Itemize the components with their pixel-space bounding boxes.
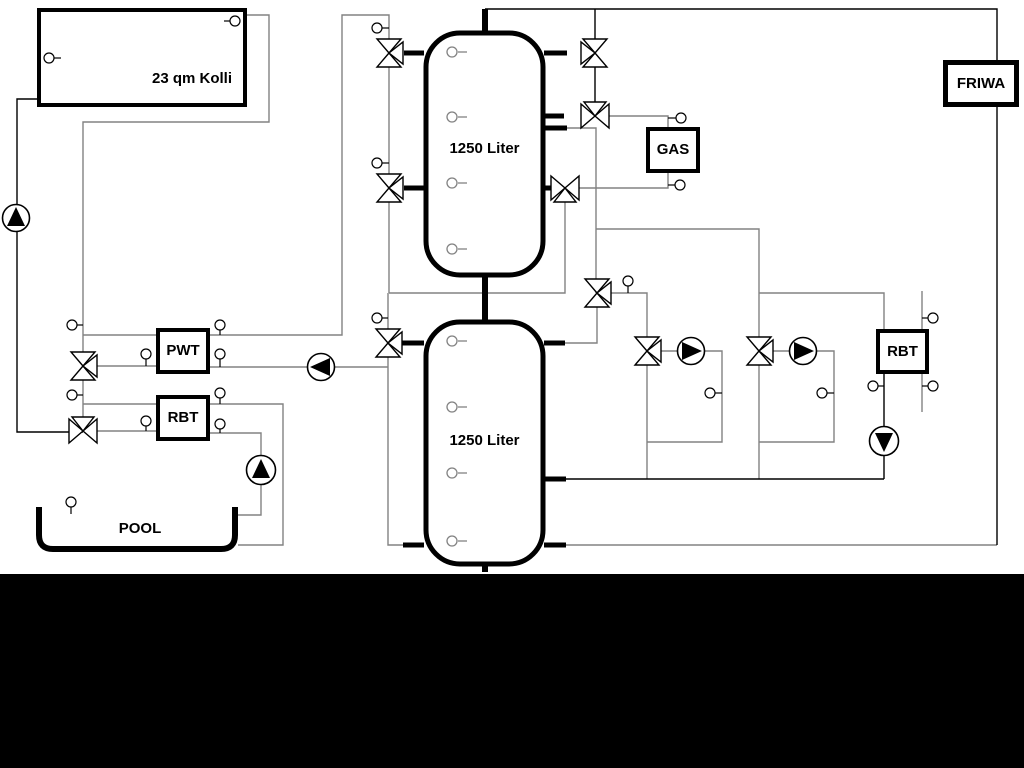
rbt-right-box — [878, 331, 927, 372]
gas-box — [648, 129, 698, 171]
sensor-icon — [372, 23, 389, 33]
rbt-left-box — [158, 397, 208, 439]
three-way-valve-icon — [747, 337, 773, 365]
pipe-collector-return-loop — [17, 99, 83, 432]
sensor-icon — [668, 113, 686, 123]
pump-icon — [870, 427, 899, 456]
pwt-box — [158, 330, 208, 372]
three-way-valve-icon — [581, 102, 609, 128]
pipe-tankstub-to-mixdown — [565, 128, 596, 293]
sensor-icon — [705, 388, 722, 398]
three-way-valve-icon — [376, 329, 402, 357]
sensor-icon — [817, 388, 834, 398]
pool-basin — [39, 507, 235, 549]
sensor-icon — [66, 497, 76, 514]
sensor-icon — [372, 313, 388, 323]
pipe-top-header-friwa — [485, 9, 997, 545]
sensor-icon — [215, 349, 225, 367]
three-way-valve-icon — [635, 337, 661, 365]
pump-icon — [308, 354, 335, 381]
tank-lower — [426, 322, 543, 564]
pipe-valve-to-circuit1 — [597, 293, 647, 479]
bottom-black-bar — [0, 574, 1024, 768]
collector-box — [39, 10, 245, 105]
pipe-gas-bottom-return — [579, 172, 668, 188]
sensor-icon — [215, 388, 225, 404]
sensor-icon — [67, 320, 83, 330]
pipe-valve-to-gas-top — [609, 116, 668, 128]
sensor-icon — [215, 419, 225, 433]
pump-icon — [247, 456, 276, 485]
three-way-valve-icon — [377, 39, 403, 67]
sensor-icon — [922, 381, 938, 391]
sensor-icon — [668, 180, 685, 190]
sensor-icon — [623, 276, 633, 293]
sensor-icon — [67, 390, 83, 400]
diagram-canvas: 23 qm Kolli 1250 Liter 1250 Liter GAS FR… — [0, 0, 1024, 768]
sensor-icon — [215, 320, 225, 335]
three-way-valve-icon — [551, 176, 579, 202]
three-way-valve-icon — [71, 352, 97, 380]
sensor-icon — [141, 349, 151, 366]
tank-upper — [426, 33, 543, 275]
sensor-icon — [922, 313, 938, 323]
sensor-icon — [372, 158, 389, 168]
three-way-valve-icon — [585, 279, 611, 307]
friwa-box — [946, 63, 1017, 105]
sensor-icon — [141, 416, 151, 431]
pipe-to-rbtright — [759, 293, 884, 329]
pump-icon — [3, 205, 30, 232]
schematic-svg — [0, 0, 1024, 576]
three-way-valve-icon — [69, 417, 97, 443]
pump-icon — [790, 338, 817, 365]
sensor-icon — [868, 381, 884, 391]
three-way-valve-icon — [377, 174, 403, 202]
pump-icon — [678, 338, 705, 365]
three-way-valve-icon — [581, 39, 607, 67]
